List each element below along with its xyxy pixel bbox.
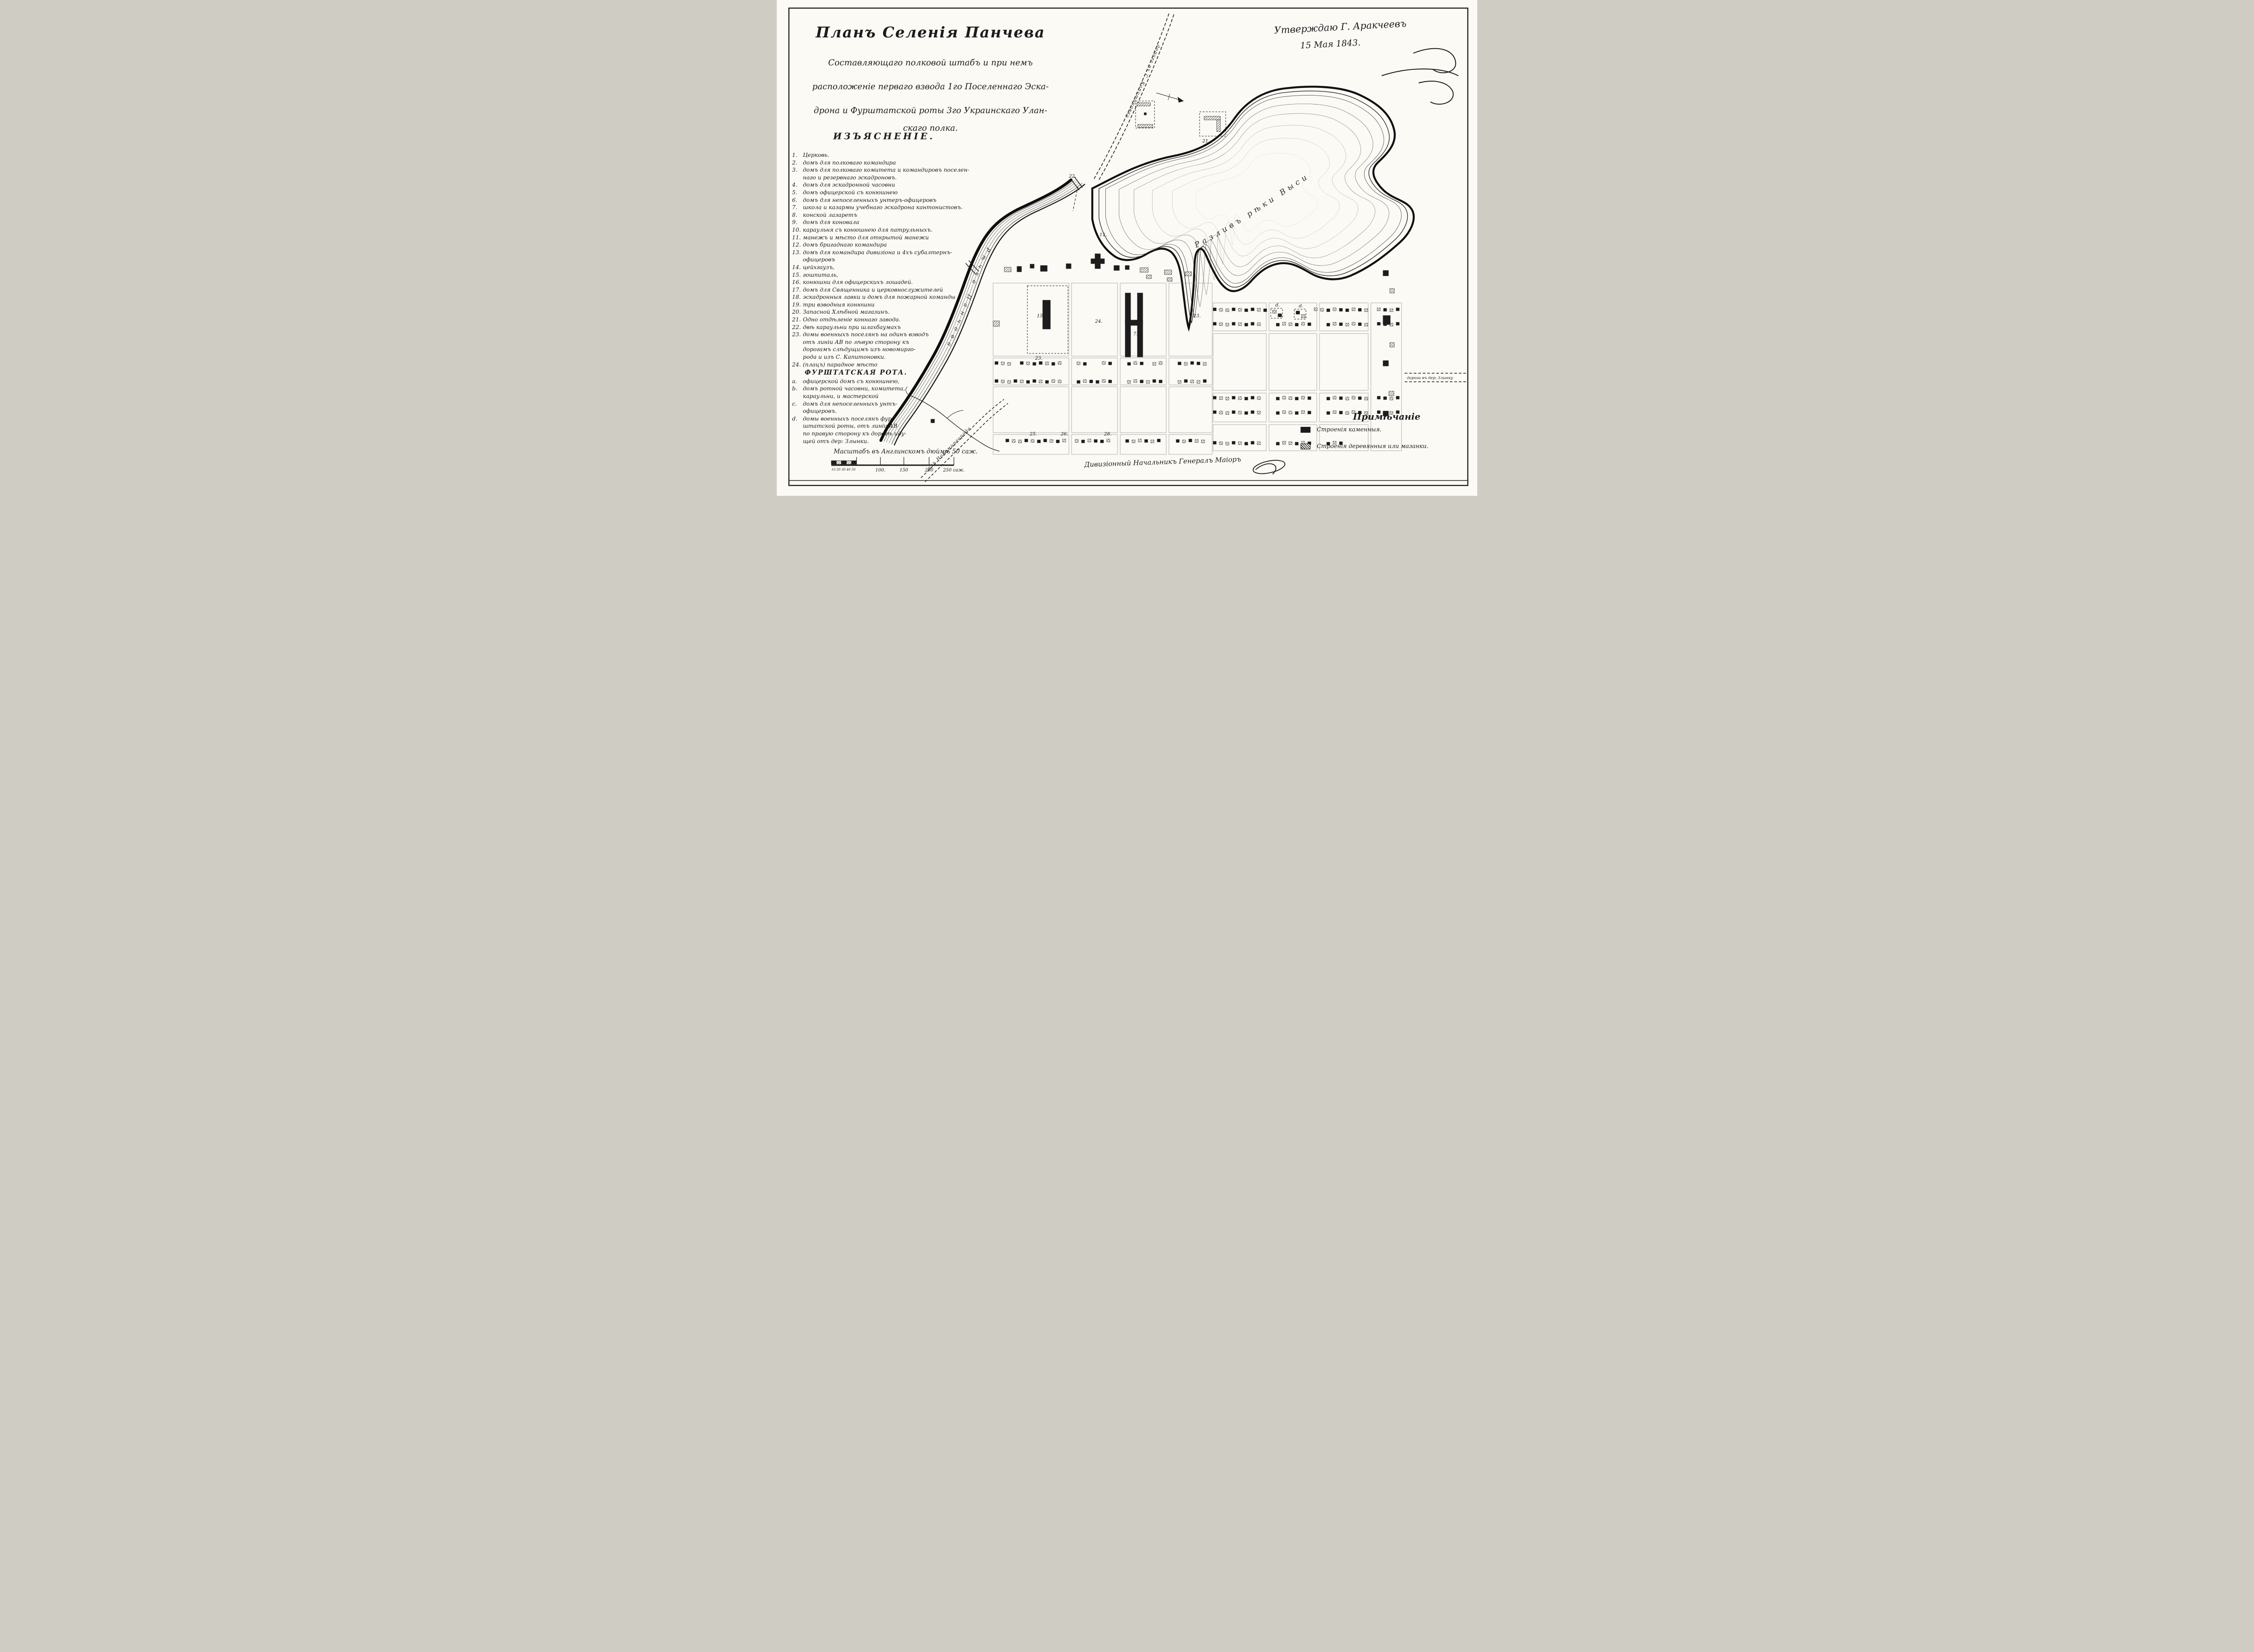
notes-row-label: Строенія деревянныя или мазанки. — [1317, 443, 1429, 450]
legend-item-text: Запасной Хлѣбной магазинъ. — [803, 308, 890, 316]
legend-item-text: домы военныхъ поселянъ на одинъ взводъ о… — [803, 331, 929, 361]
wooden-house — [1283, 396, 1286, 399]
wooden-house — [1238, 411, 1242, 414]
wooden-house — [1050, 439, 1053, 443]
stone-house — [1025, 439, 1028, 442]
wooden-house — [1008, 362, 1011, 366]
stone-house — [1339, 308, 1342, 311]
legend-item-text: домъ для Священника и церковнослужителей — [803, 286, 943, 294]
wooden-house — [1039, 380, 1042, 383]
legend-item: 20.Запасной Хлѣбной магазинъ. — [792, 308, 998, 316]
wooden-house — [1238, 308, 1242, 311]
stone-building — [1125, 265, 1129, 270]
stone-house — [1245, 309, 1248, 312]
stone-house — [1339, 397, 1342, 400]
legend-item: 8.конской лазаретъ — [792, 211, 998, 219]
notes-header: Примѣчаніе — [1337, 411, 1436, 422]
stone-house — [1384, 397, 1387, 400]
stone-building — [1144, 113, 1146, 115]
wooden-house — [1333, 322, 1336, 325]
legend-item-text: домъ ротной часовни, комитета, караульни… — [803, 385, 905, 400]
stone-house — [1045, 380, 1049, 384]
compass-arrow — [1156, 93, 1183, 102]
town-block — [1072, 387, 1118, 433]
legend-item-number: 8. — [792, 211, 803, 219]
legend-item: 10.караульня съ конюшнею для патрульныхъ… — [792, 226, 998, 234]
wooden-house — [1138, 439, 1141, 442]
wooden-house — [1226, 323, 1229, 326]
stone-house — [1251, 411, 1254, 414]
map-number-label: 23. — [1193, 313, 1201, 319]
furshtat-item: c.домъ для непоселенныхъ унтъ- офицеровъ… — [792, 400, 998, 415]
wooden-house — [1219, 411, 1223, 414]
wooden-house — [1301, 322, 1305, 325]
map-subtitle-line: дрона и Фурштатской роты 3го Украинскаго… — [803, 99, 1058, 123]
legend-item-text: домъ для непоселенныхъ унтеръ-офицеровъ — [803, 197, 936, 204]
stone-house — [1276, 397, 1279, 400]
wooden-house — [1178, 380, 1181, 384]
notes-row: Строенія деревянныя или мазанки. — [1301, 443, 1463, 450]
wooden-house — [1197, 380, 1200, 384]
stone-house — [1251, 396, 1254, 399]
wooden-house — [1314, 308, 1317, 311]
legend-item-text: домъ для полковаго командира — [803, 159, 896, 167]
wooden-house — [1063, 439, 1066, 442]
stone-house — [1026, 380, 1030, 384]
stone-building — [1040, 265, 1047, 271]
wooden-house — [1352, 396, 1355, 399]
legend-item-text: гошпиталь, — [803, 271, 838, 279]
legend-item-text: двѣ караульни при шлахбаумахъ — [803, 324, 901, 331]
stone-house — [1232, 308, 1235, 311]
wooden-house — [1134, 362, 1137, 365]
stone-house — [1327, 323, 1330, 326]
wooden-house — [1283, 322, 1286, 325]
wooden-house — [1226, 397, 1229, 400]
town-block — [1072, 435, 1118, 454]
legend-item-number: 10. — [792, 226, 803, 234]
wooden-building — [1138, 124, 1153, 128]
legend-item: 5.домъ офицерской съ конюшнею — [792, 189, 998, 197]
scale-segment — [852, 461, 857, 464]
stone-building — [1017, 266, 1022, 272]
map-number-label: 21. — [1202, 138, 1210, 144]
stone-house — [1232, 411, 1235, 414]
legend-item-text: караульня съ конюшнею для патрульныхъ. — [803, 226, 932, 234]
legend-item-number: 9. — [792, 219, 803, 226]
wooden-house — [1146, 380, 1150, 384]
legend-item: 2.домъ для полковаго командира — [792, 159, 998, 167]
scale-bar: 100.150200250 саж. 10 20 30 40 50 — [831, 457, 965, 473]
map-number-label: 7. — [1133, 331, 1138, 337]
map-title-block: Планъ Селенія Панчева Составляющаго полк… — [803, 17, 1058, 133]
stone-house — [1197, 362, 1200, 365]
legend-item: 22.двѣ караульни при шлахбаумахъ — [792, 324, 998, 331]
wooden-house — [1026, 362, 1030, 365]
legend-item-number: 21. — [792, 316, 803, 324]
legend-item-text: домъ для коновала — [803, 219, 859, 226]
legend-list: 1.Церковь.2.домъ для полковаго командира… — [792, 151, 998, 445]
stone-house — [1327, 397, 1330, 400]
legend-item: 4.домъ для эскадронной часовни — [792, 181, 998, 189]
stone-house — [1039, 362, 1042, 365]
wooden-house — [1352, 308, 1355, 311]
stone-house — [1140, 362, 1143, 365]
legend-item: 15.гошпиталь, — [792, 271, 998, 279]
wooden-house — [1346, 397, 1349, 400]
approval-flourish — [1382, 49, 1458, 104]
road-right-label: дорога въ дер: Злынку — [1407, 376, 1453, 380]
wooden-house — [1257, 323, 1260, 326]
stone-house — [1184, 380, 1187, 383]
wooden-house — [1031, 439, 1034, 443]
wooden-house — [1020, 380, 1023, 383]
map-number-label: 26. — [1060, 431, 1068, 437]
legend-item-text: Церковь. — [803, 151, 829, 159]
stone-house — [1245, 412, 1248, 415]
stone-building — [1095, 254, 1100, 269]
wooden-house — [1001, 380, 1004, 383]
wooden-house — [1333, 308, 1336, 311]
legend-item: 6.домъ для непоселенныхъ унтеръ-офицеров… — [792, 197, 998, 204]
legend-item-number: 7. — [792, 204, 803, 211]
stone-house — [1396, 308, 1399, 311]
town-block — [1269, 334, 1317, 390]
stone-house — [1308, 323, 1311, 326]
legend-item-number: 19. — [792, 301, 803, 309]
stone-house — [1189, 439, 1192, 442]
stone-house — [1109, 380, 1112, 383]
stone-building — [1383, 316, 1390, 325]
scale-tick-label: 150 — [899, 468, 908, 473]
stone-house — [1232, 322, 1235, 325]
town-block — [1319, 334, 1368, 390]
stone-house — [1020, 362, 1023, 365]
legend-item-number: 20. — [792, 308, 803, 316]
stone-house — [1014, 380, 1017, 383]
stone-house — [1094, 439, 1097, 443]
wooden-building — [1137, 103, 1150, 106]
legend-item-number: 15. — [792, 271, 803, 279]
wooden-house — [1226, 309, 1229, 312]
wooden-house — [1257, 442, 1260, 445]
stone-house — [1327, 309, 1330, 312]
legend-item-number: 1. — [792, 151, 803, 159]
map-number-label: 22. — [1068, 174, 1077, 179]
legend-item-text: домъ офицерской съ конюшнею — [803, 189, 898, 197]
wooden-house — [1201, 440, 1205, 443]
stone-house — [1140, 380, 1143, 383]
stone-house — [1245, 397, 1248, 400]
stone-house — [1052, 362, 1055, 366]
scale-minor-labels: 10 20 30 40 50 — [831, 468, 856, 471]
wooden-house — [1257, 397, 1260, 400]
legend-item-text: Одно отдѣленіе коннаго завода. — [803, 316, 901, 324]
wooden-building — [1167, 278, 1172, 281]
legend-item-text: манежъ и мѣсто для открытой манежи — [803, 234, 929, 242]
legend-item: 18.эскадронныя лавки и домъ для пожарной… — [792, 293, 998, 301]
wooden-house — [1075, 439, 1078, 443]
map-sheet: 22.11.15.24.7.21.23.23.25.26.28.d.d. Раз… — [777, 0, 1477, 496]
wooden-house — [1226, 442, 1229, 445]
stone-house — [1232, 441, 1235, 444]
stone-house — [1044, 439, 1047, 442]
stone-building — [1030, 264, 1034, 268]
town-block — [1319, 303, 1368, 331]
wooden-house — [1283, 411, 1286, 414]
legend-item-number: 2. — [792, 159, 803, 167]
legend-item-text: (плацъ) парадное мѣсто — [803, 361, 877, 369]
stone-house — [1159, 380, 1162, 383]
town-block — [1169, 387, 1212, 433]
furshtat-item: a.офицерской домъ съ конюшнею, — [792, 378, 998, 385]
stone-building — [1066, 264, 1071, 269]
stone-house — [1037, 440, 1040, 443]
town-block — [1120, 435, 1166, 454]
stone-house — [1327, 412, 1330, 415]
legend-item-text: домъ для полковаго комитета и командиров… — [803, 166, 969, 181]
wooden-house — [1088, 439, 1091, 442]
map-title: Планъ Селенія Панчева — [803, 23, 1058, 41]
town-block — [993, 435, 1069, 454]
legend-item-number: 3. — [792, 166, 803, 181]
stone-house — [1295, 412, 1298, 415]
stone-house — [1213, 322, 1216, 325]
wooden-building — [1273, 310, 1276, 313]
stone-building — [1278, 314, 1282, 317]
legend-item-number: a. — [792, 378, 803, 385]
wood-building-swatch — [1301, 444, 1310, 449]
town-block — [1072, 283, 1118, 356]
wooden-house — [1018, 440, 1022, 443]
stone-house — [1213, 411, 1216, 414]
wooden-building — [1164, 270, 1172, 275]
wooden-house — [1151, 440, 1154, 443]
wooden-house — [1257, 308, 1260, 311]
legend-item: 7.школа и казармы учебнаго эскадрона кан… — [792, 204, 998, 211]
stone-house — [1377, 322, 1380, 325]
stone-house — [1358, 308, 1361, 311]
legend-item-number: 24. — [792, 361, 803, 369]
wooden-house — [1127, 380, 1131, 384]
legend-item: 19.три взводныя конюшни — [792, 301, 998, 309]
stone-house — [1100, 440, 1104, 443]
wooden-house — [1077, 362, 1080, 365]
wooden-house — [1219, 397, 1223, 400]
stone-house — [1232, 396, 1235, 399]
stone-house — [1178, 362, 1181, 365]
stone-house — [1203, 380, 1206, 383]
stone-house — [1127, 362, 1131, 366]
wooden-house — [1203, 362, 1206, 366]
legend-item-text: конской лазаретъ — [803, 211, 857, 219]
wooden-building — [1389, 391, 1394, 396]
legend-item: 1.Церковь. — [792, 151, 998, 159]
stone-building — [1383, 270, 1388, 276]
legend-item: 11.манежъ и мѣсто для открытой манежи — [792, 234, 998, 242]
map-number-label: 25. — [1029, 431, 1037, 437]
stone-house — [1096, 380, 1099, 384]
wooden-house — [1153, 362, 1156, 366]
wooden-house — [1301, 411, 1305, 414]
legend-item-number: 17. — [792, 286, 803, 294]
wooden-house — [1365, 397, 1368, 400]
wooden-house — [1333, 396, 1336, 399]
wooden-house — [1365, 323, 1368, 326]
legend-item-number: c. — [792, 400, 803, 415]
stone-house — [1081, 440, 1085, 443]
stone-house — [1077, 380, 1080, 384]
wooden-house — [1191, 380, 1194, 383]
wooden-house — [1390, 397, 1393, 400]
legend-item-number: d. — [792, 415, 803, 445]
wooden-house — [1289, 411, 1292, 414]
wooden-house — [1184, 362, 1187, 366]
town-block — [1169, 435, 1212, 454]
stone-house — [1295, 442, 1298, 445]
wooden-house — [1301, 396, 1305, 399]
wooden-house — [1058, 380, 1061, 383]
legend-item: 13.домъ для командира дивизіона и 4хъ су… — [792, 249, 998, 264]
legend-item-text: офицерской домъ съ конюшнею, — [803, 378, 899, 385]
legend-item-text: школа и казармы учебнаго эскадрона канто… — [803, 204, 962, 211]
stone-house — [1056, 440, 1059, 443]
map-number-label: 24. — [1095, 319, 1103, 324]
stone-house — [1308, 411, 1311, 414]
stone-house — [1126, 439, 1129, 443]
map-number-label: 28. — [1104, 431, 1112, 437]
town-block — [993, 283, 1069, 356]
scale-tick-label: 100. — [875, 468, 885, 473]
wooden-house — [1182, 440, 1186, 443]
wooden-building — [1217, 120, 1220, 132]
stone-house — [1396, 396, 1399, 399]
legend-item-text: цейхгаузъ, — [803, 264, 834, 271]
wooden-building — [1204, 116, 1220, 120]
scale-caption: Масштабъ въ Англинскомъ дюймѣ 50 саж. — [830, 448, 981, 455]
town-block — [993, 387, 1069, 433]
scale-segment — [841, 461, 846, 464]
town-block — [1120, 387, 1166, 433]
stone-house — [1358, 323, 1361, 326]
wooden-building — [1390, 343, 1394, 347]
town-block — [1213, 425, 1266, 451]
stone-house — [1384, 308, 1387, 311]
stone-house — [1295, 397, 1298, 400]
legend-item: 21.Одно отдѣленіе коннаго завода. — [792, 316, 998, 324]
legend-item-text: домы военныхъ поселянъ фур- штатской рот… — [803, 415, 907, 445]
wooden-house — [1289, 397, 1292, 400]
town-block — [1213, 303, 1266, 331]
wooden-house — [1045, 362, 1049, 365]
legend-item-number: 6. — [792, 197, 803, 204]
wooden-house — [1058, 362, 1061, 365]
legend-item-number: 5. — [792, 189, 803, 197]
legend-item-number: 12. — [792, 241, 803, 249]
stone-house — [1276, 323, 1279, 326]
legend-item: 9.домъ для коновала — [792, 219, 998, 226]
wooden-house — [1365, 309, 1368, 312]
wooden-house — [1219, 442, 1223, 445]
wooden-building — [1140, 268, 1148, 272]
stone-house — [1157, 439, 1160, 442]
wooden-house — [1195, 439, 1198, 443]
legend-item-number: 13. — [792, 249, 803, 264]
legend-item-number: b. — [792, 385, 803, 400]
stone-house — [1033, 380, 1036, 383]
wooden-house — [1390, 309, 1393, 312]
scale-tick-label: 250 саж. — [943, 468, 965, 473]
wooden-house — [1352, 322, 1355, 325]
wooden-house — [1283, 441, 1286, 444]
stone-house — [1213, 441, 1216, 444]
wooden-building — [1146, 275, 1151, 279]
wooden-house — [1107, 439, 1110, 442]
legend-item-number: 23. — [792, 331, 803, 361]
wooden-house — [1102, 362, 1105, 365]
wooden-house — [1377, 308, 1380, 311]
legend-item-text: домъ для эскадронной часовни — [803, 181, 895, 189]
stone-house — [1251, 441, 1254, 444]
town-block — [1213, 334, 1266, 390]
stone-house — [1109, 362, 1112, 365]
stone-house — [1276, 412, 1279, 415]
wooden-house — [1159, 362, 1162, 365]
stone-house — [1377, 396, 1380, 399]
stone-building — [1383, 361, 1388, 366]
legend-item-number: 11. — [792, 234, 803, 242]
wooden-house — [1333, 411, 1336, 414]
wooden-house — [1219, 323, 1223, 326]
map-number-label: 15. — [1037, 313, 1045, 319]
wooden-house — [1083, 380, 1086, 383]
wooden-house — [1219, 308, 1223, 311]
wooden-house — [1001, 362, 1004, 365]
legend-item: 3.домъ для полковаго комитета и командир… — [792, 166, 998, 181]
legend-item-number: 16. — [792, 279, 803, 286]
legend-header: ИЗЪЯСНЕНІЕ. — [816, 131, 952, 142]
stone-house — [1308, 397, 1311, 400]
furshtat-header: ФУРШТАТСКАЯ РОТА. — [805, 369, 998, 377]
stone-house — [1245, 442, 1248, 445]
wooden-house — [1289, 442, 1292, 445]
wooden-building — [1301, 315, 1305, 318]
scale-segment — [836, 461, 841, 464]
wooden-house — [1134, 380, 1137, 383]
stone-house — [1083, 362, 1086, 366]
scale-segment — [831, 461, 836, 464]
stone-house — [1264, 309, 1267, 312]
map-number-label: d. — [1299, 303, 1303, 309]
furshtat-item: d.домы военныхъ поселянъ фур- штатской р… — [792, 415, 998, 445]
wooden-house — [1320, 308, 1324, 311]
wooden-building — [1185, 272, 1191, 276]
legend-item: 24.(плацъ) парадное мѣсто — [792, 361, 998, 369]
stone-building-swatch — [1301, 427, 1310, 433]
stone-house — [1276, 442, 1279, 445]
map-number-label: d. — [1275, 302, 1280, 308]
legend-item-number: 22. — [792, 324, 803, 331]
wooden-house — [1008, 380, 1011, 384]
wooden-house — [1346, 323, 1349, 326]
wooden-building — [1390, 288, 1394, 293]
wooden-house — [1012, 439, 1015, 443]
stone-house — [1191, 362, 1194, 365]
wooden-house — [1226, 412, 1229, 415]
stone-house — [1145, 439, 1148, 443]
stone-building — [1114, 265, 1119, 270]
notes-row: Строенія каменныя. — [1301, 426, 1463, 433]
